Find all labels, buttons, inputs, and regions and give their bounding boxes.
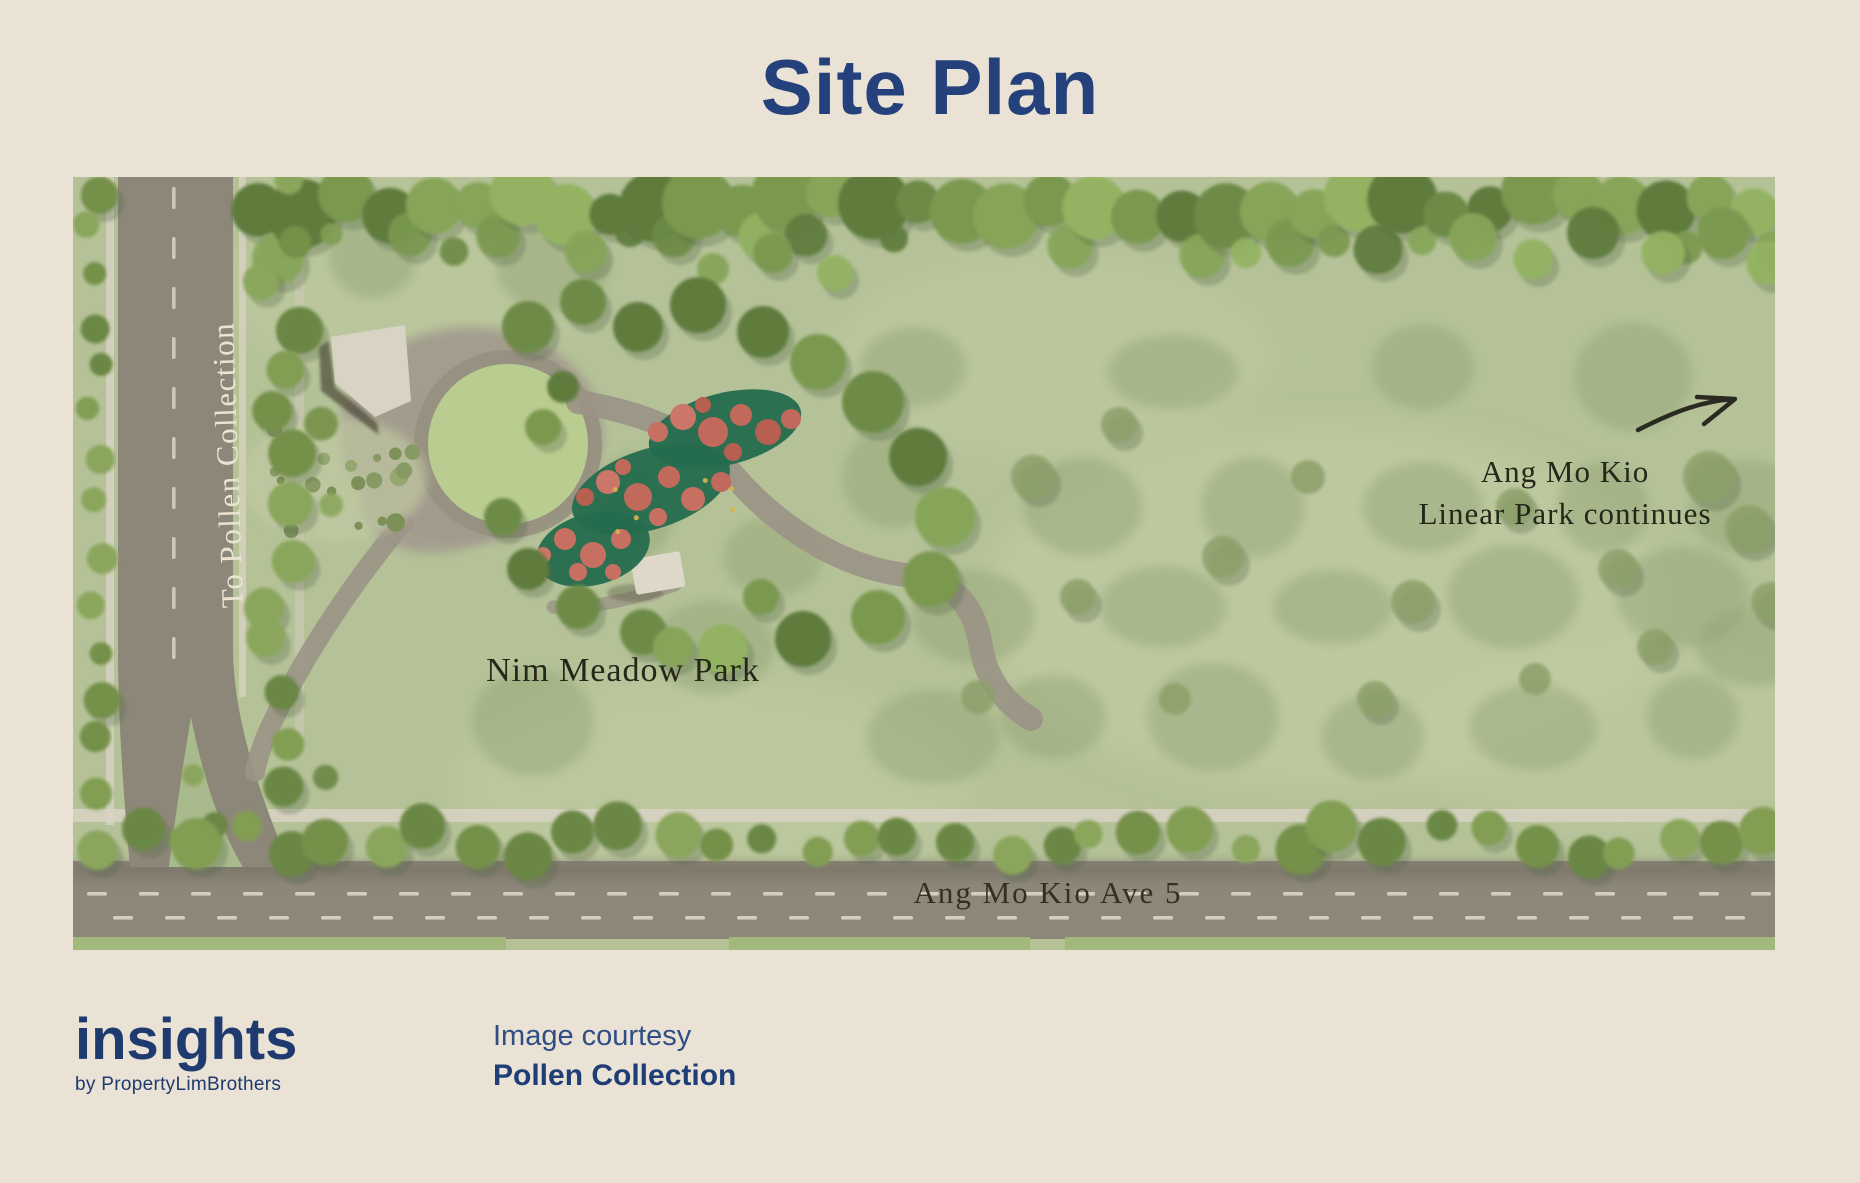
curved-arrow-icon [1633,389,1747,437]
insights-logo-byline: by PropertyLimBrothers [75,1074,297,1096]
map-label-linear-park-line1: Ang Mo Kio [1418,451,1711,493]
map-label-nim-meadow-park: Nim Meadow Park [486,652,760,690]
map-label-linear-park-line2: Linear Park continues [1418,493,1711,535]
site-plan-illustration [73,177,1775,950]
site-plan-map: To Pollen Collection Nim Meadow Park Ang… [73,177,1775,950]
page-title: Site Plan [0,42,1860,133]
insights-logo-wordmark: insights [75,1008,297,1072]
arrow-shaft [1638,399,1734,430]
map-label-linear-park: Ang Mo Kio Linear Park continues [1418,451,1711,535]
image-credit-label: Image courtesy [493,1018,736,1056]
page: Site Plan To Pollen Collection Nim Meado… [0,0,1860,1183]
insights-logo: insights by PropertyLimBrothers [75,1008,297,1096]
map-label-ang-mo-kio-ave-5: Ang Mo Kio Ave 5 [913,875,1182,911]
image-credit-source: Pollen Collection [493,1056,736,1095]
image-credit: Image courtesy Pollen Collection [493,1018,736,1095]
